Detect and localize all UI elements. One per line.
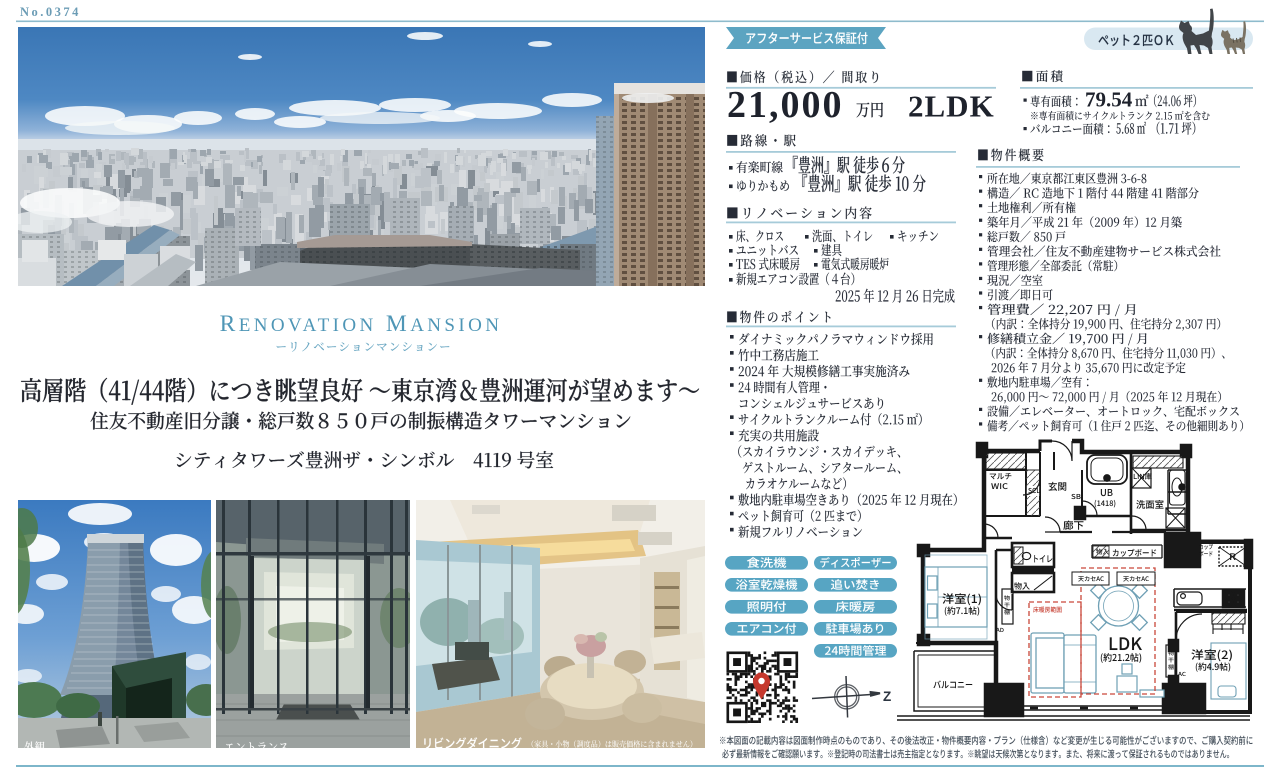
- svg-text:79.54: 79.54: [1085, 88, 1133, 112]
- svg-text:2LDK: 2LDK: [908, 89, 995, 124]
- svg-text:Z: Z: [883, 689, 891, 704]
- svg-text:21,000: 21,000: [727, 84, 844, 126]
- svg-text:No.0374: No.0374: [20, 5, 81, 19]
- svg-text:RENOVATION MANSION: RENOVATION MANSION: [220, 311, 503, 337]
